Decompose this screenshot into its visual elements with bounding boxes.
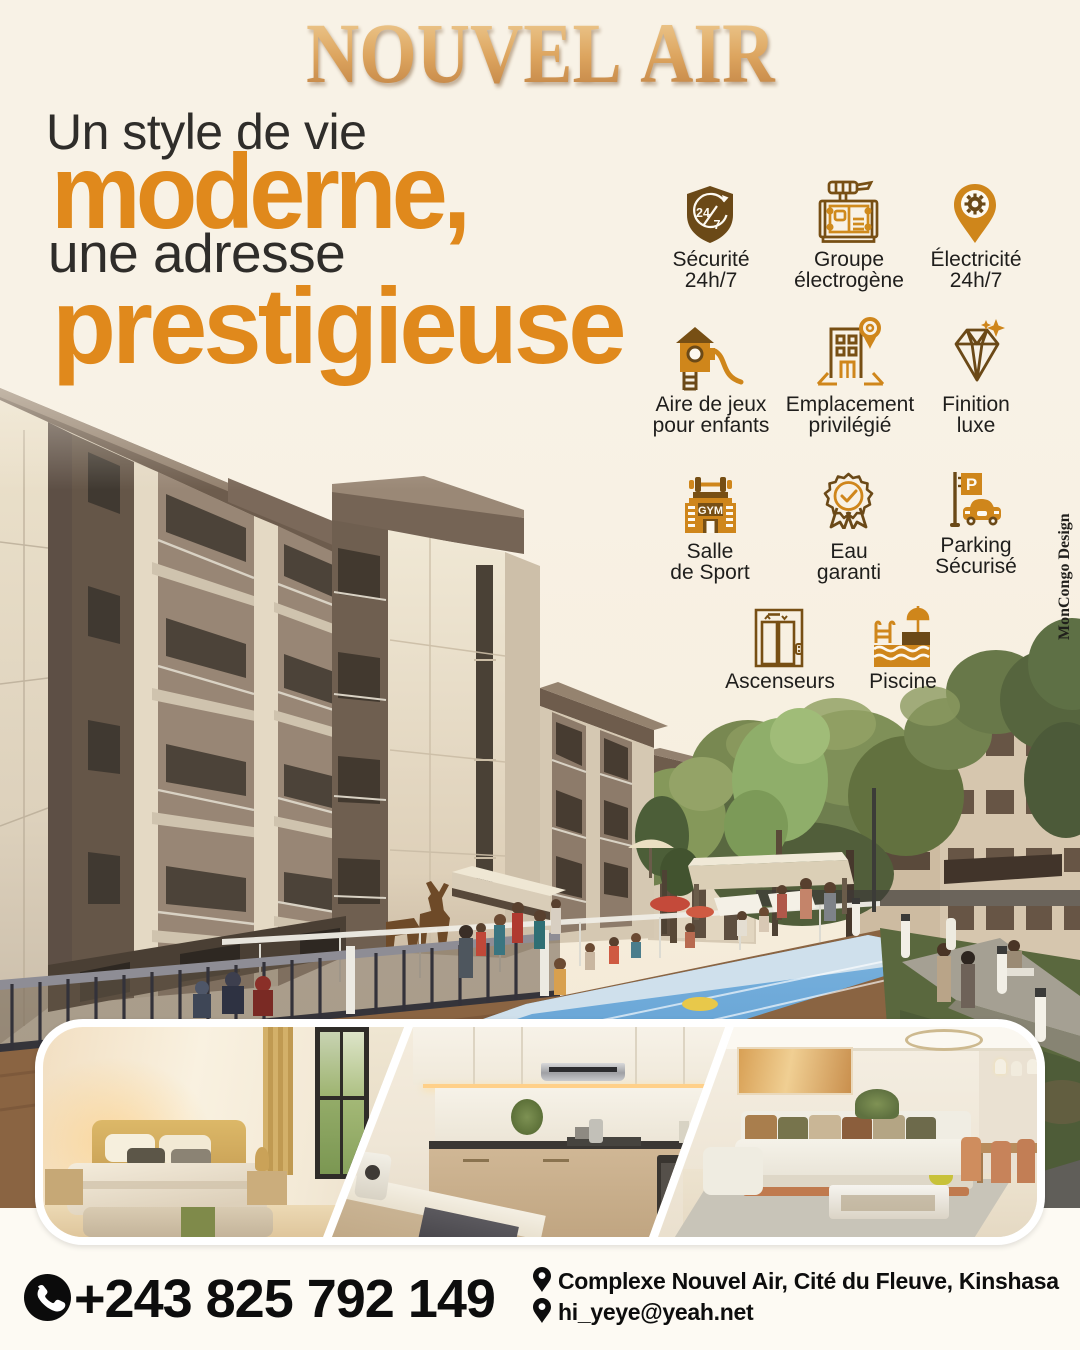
svg-text:P: P <box>966 475 977 494</box>
svg-text:GYM: GYM <box>698 505 723 517</box>
svg-text:7: 7 <box>714 218 721 232</box>
